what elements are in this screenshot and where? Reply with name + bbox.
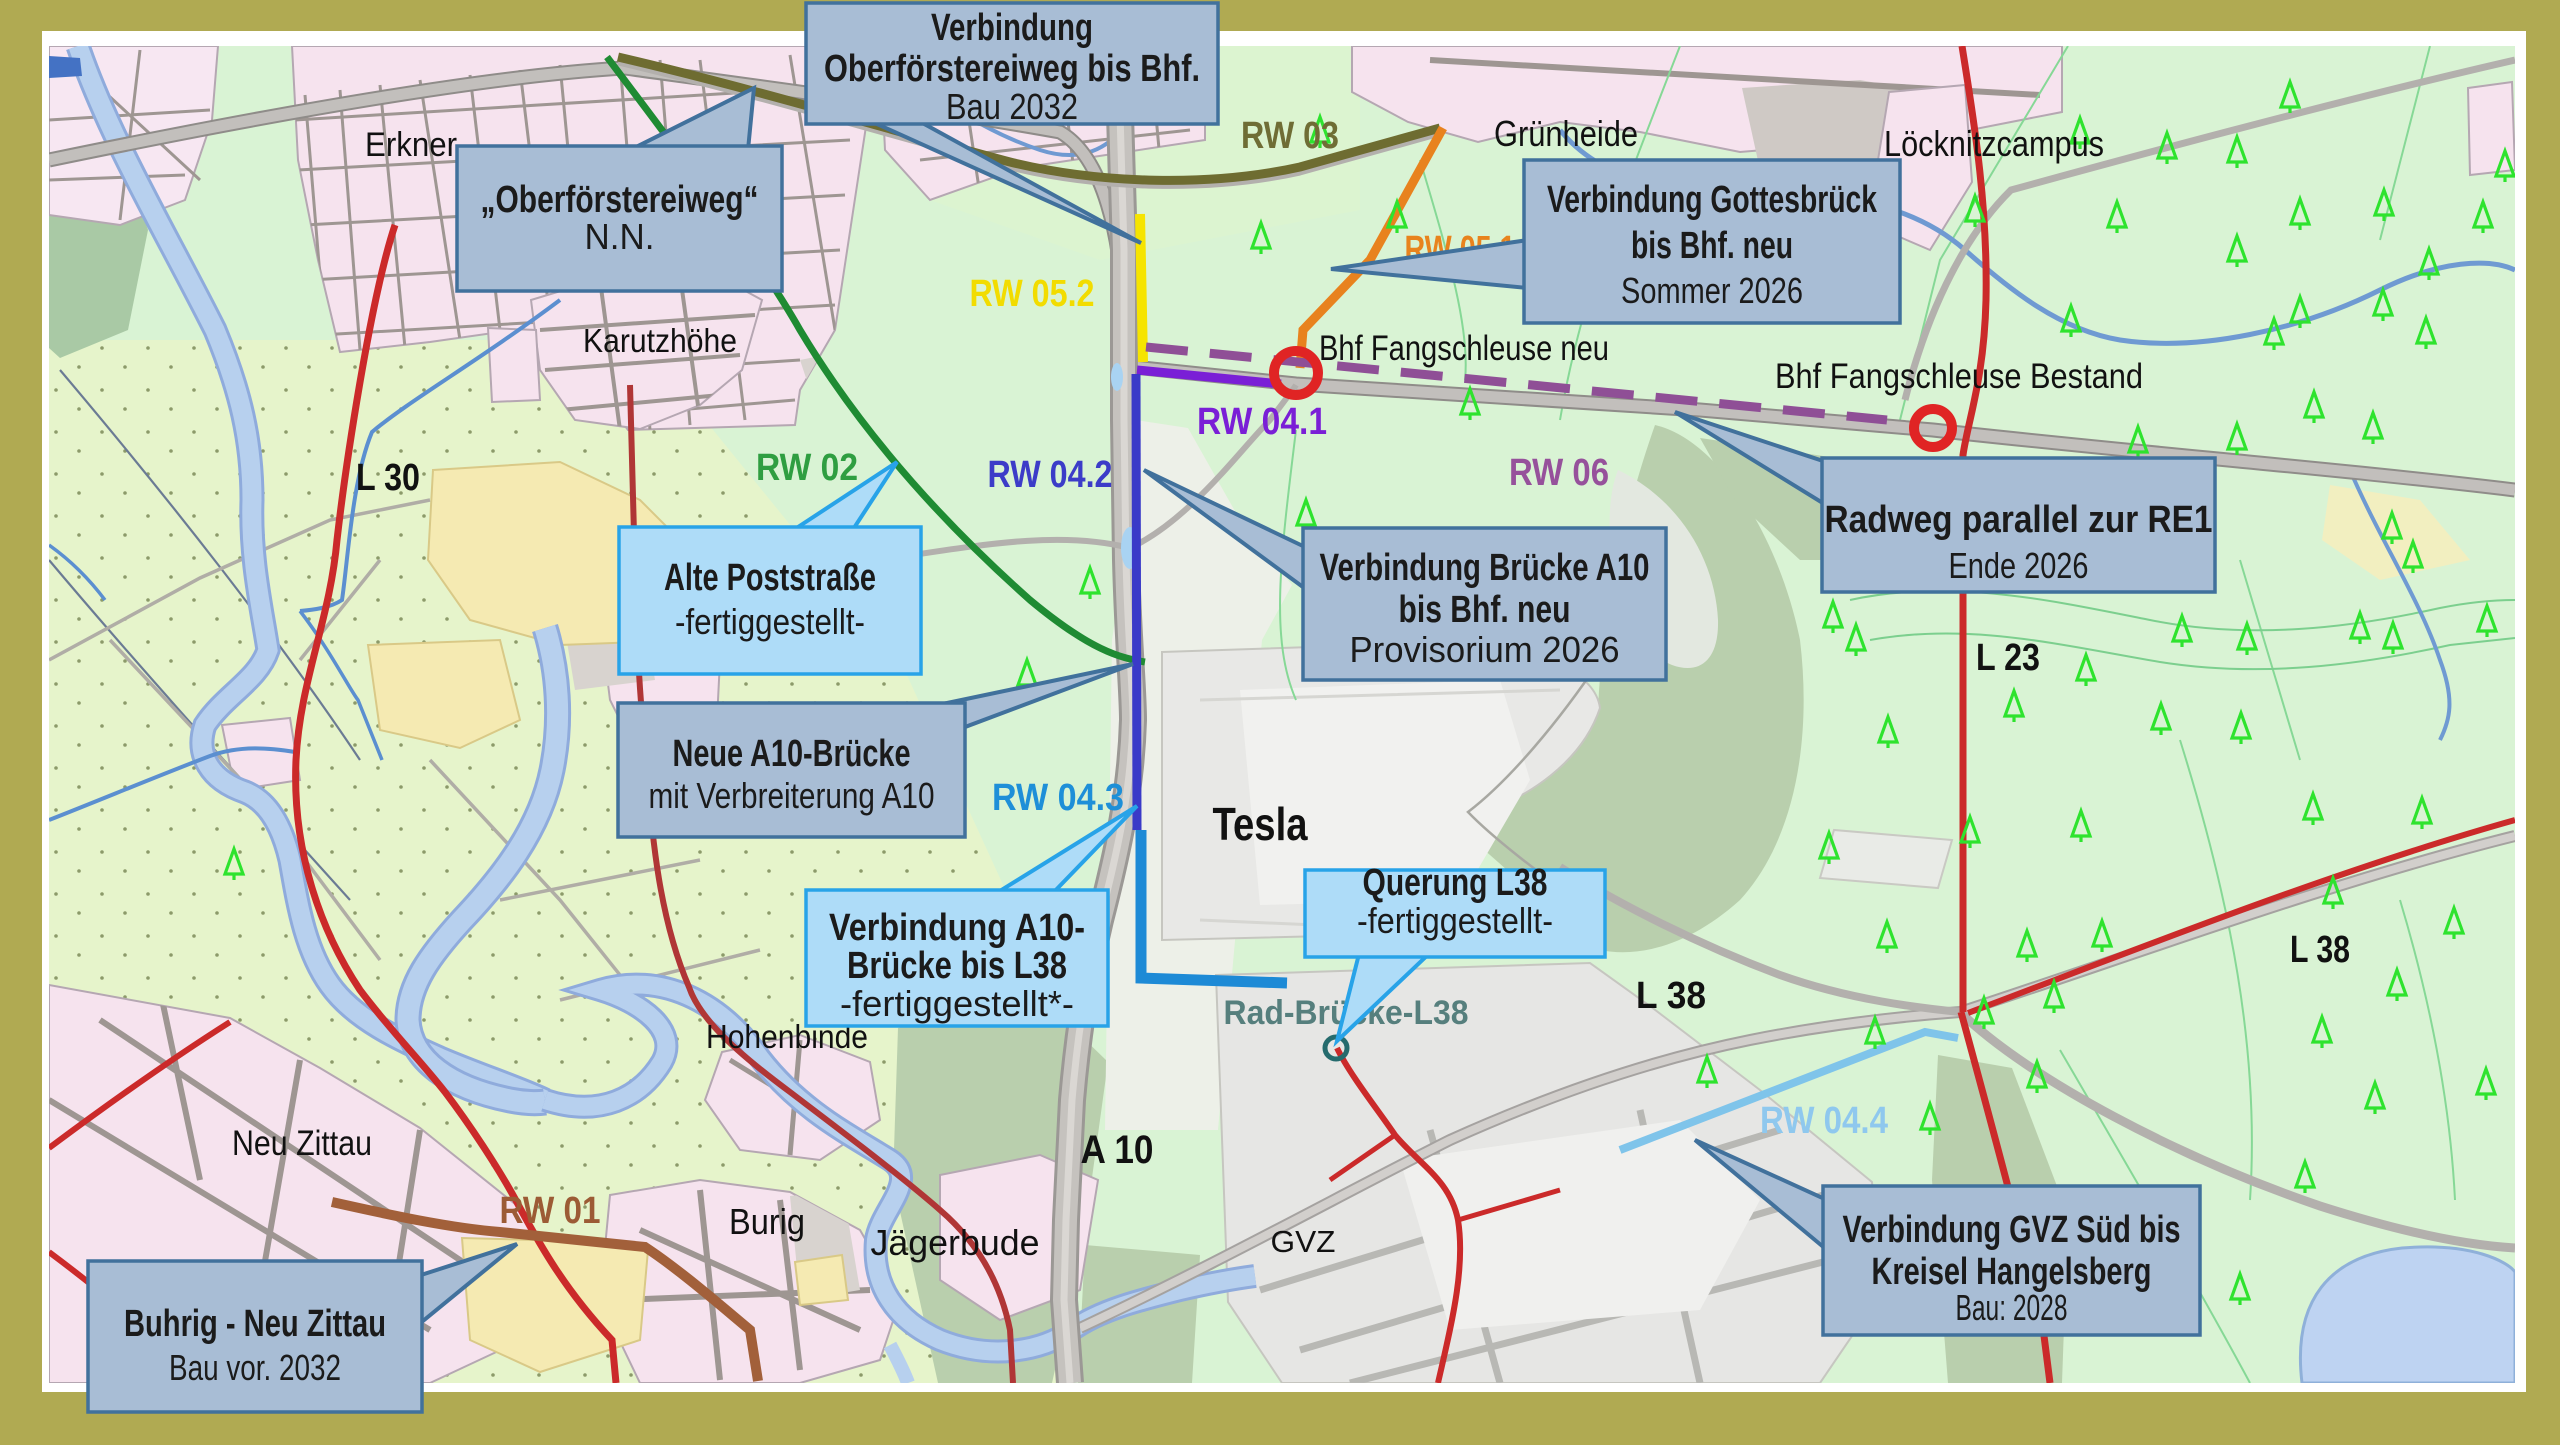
svg-text:Tesla: Tesla	[1213, 798, 1308, 850]
svg-text:-fertiggestellt-: -fertiggestellt-	[1357, 900, 1553, 941]
svg-text:Erkner: Erkner	[365, 126, 457, 164]
svg-text:Verbindung Gottesbrück: Verbindung Gottesbrück	[1547, 179, 1878, 221]
svg-text:Provisorium 2026: Provisorium 2026	[1350, 629, 1620, 670]
svg-text:Verbindung A10-: Verbindung A10-	[829, 907, 1085, 949]
svg-text:Oberförstereiweg bis Bhf.: Oberförstereiweg bis Bhf.	[824, 48, 1200, 90]
svg-text:Verbindung: Verbindung	[931, 7, 1093, 49]
svg-text:Löcknitzcampus: Löcknitzcampus	[1884, 123, 2104, 164]
svg-text:L 30: L 30	[356, 457, 420, 499]
svg-text:mit Verbreiterung A10: mit Verbreiterung A10	[649, 775, 935, 816]
svg-text:RW 03: RW 03	[1241, 115, 1339, 157]
svg-text:L 38: L 38	[1636, 975, 1706, 1017]
svg-text:Neu Zittau: Neu Zittau	[232, 1124, 372, 1163]
svg-text:Jägerbude: Jägerbude	[871, 1222, 1040, 1263]
svg-text:RW 04.4: RW 04.4	[1760, 1100, 1888, 1142]
svg-text:-fertiggestellt*-: -fertiggestellt*-	[840, 983, 1074, 1024]
svg-text:GVZ: GVZ	[1271, 1224, 1336, 1259]
svg-text:RW 01: RW 01	[500, 1190, 601, 1232]
svg-text:A 10: A 10	[1081, 1128, 1154, 1172]
svg-text:Grünheide: Grünheide	[1494, 113, 1638, 154]
svg-text:Radweg parallel zur RE1: Radweg parallel zur RE1	[1825, 499, 2213, 541]
svg-text:Bau: 2028: Bau: 2028	[1956, 1287, 2068, 1328]
svg-text:RW 06: RW 06	[1509, 452, 1609, 494]
svg-text:Alte Poststraße: Alte Poststraße	[664, 557, 876, 599]
svg-text:Ende 2026: Ende 2026	[1949, 545, 2089, 586]
svg-text:Burig: Burig	[729, 1201, 805, 1242]
svg-text:RW 05.2: RW 05.2	[970, 273, 1095, 315]
svg-text:Verbindung GVZ Süd bis: Verbindung GVZ Süd bis	[1843, 1209, 2181, 1251]
svg-text:„Oberförstereiweg“: „Oberförstereiweg“	[481, 179, 759, 221]
svg-text:N.N.: N.N.	[585, 216, 655, 257]
svg-text:Neue A10-Brücke: Neue A10-Brücke	[673, 733, 911, 775]
svg-text:Bau 2032: Bau 2032	[946, 86, 1078, 127]
svg-text:L 38: L 38	[2290, 929, 2350, 971]
svg-text:bis Bhf. neu: bis Bhf. neu	[1631, 225, 1793, 267]
svg-text:Karutzhöhe: Karutzhöhe	[583, 322, 737, 359]
svg-text:Brücke bis L38: Brücke bis L38	[847, 945, 1067, 987]
svg-text:Verbindung Brücke A10: Verbindung Brücke A10	[1320, 547, 1650, 589]
svg-text:-fertiggestellt-: -fertiggestellt-	[675, 601, 865, 642]
svg-text:bis Bhf. neu: bis Bhf. neu	[1399, 589, 1571, 631]
svg-text:Bhf Fangschleuse neu: Bhf Fangschleuse neu	[1319, 329, 1609, 368]
svg-text:Bau vor. 2032: Bau vor. 2032	[169, 1347, 341, 1388]
svg-text:Bhf Fangschleuse Bestand: Bhf Fangschleuse Bestand	[1775, 357, 2143, 396]
svg-text:RW 04.1: RW 04.1	[1197, 401, 1327, 443]
svg-text:Querung L38: Querung L38	[1363, 862, 1548, 904]
svg-text:RW 04.3: RW 04.3	[992, 777, 1124, 819]
svg-text:RW 04.2: RW 04.2	[988, 454, 1113, 496]
svg-text:Buhrig - Neu Zittau: Buhrig - Neu Zittau	[124, 1303, 386, 1345]
svg-text:Sommer 2026: Sommer 2026	[1621, 270, 1803, 311]
svg-text:RW 02: RW 02	[756, 447, 858, 489]
svg-text:L 23: L 23	[1976, 637, 2040, 679]
